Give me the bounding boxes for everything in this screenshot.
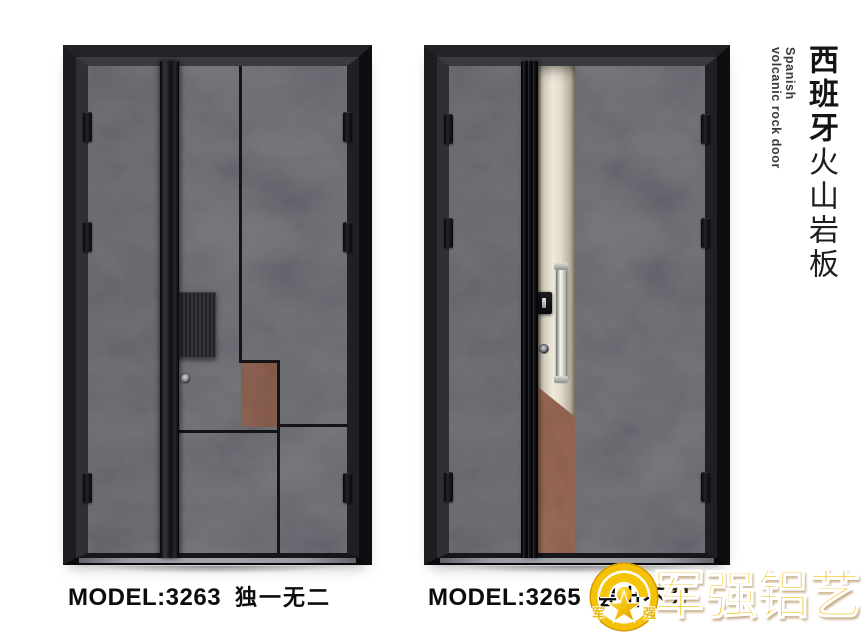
model-tagline: 独一无二 [235,585,331,610]
brand-wordmark: 军强铝艺 [653,569,861,624]
rust-accent-panel [241,363,277,427]
panel-seam-horizontal [239,360,280,363]
emblem-char-right: 强 [643,603,656,622]
hinge [701,114,710,144]
rust-inlay-strip [538,387,575,553]
panel-seam-vertical [239,66,242,362]
hinge [701,218,710,248]
model-caption-3263: MODEL:3263独一无二 [68,580,331,612]
model-number: MODEL:3265 [428,584,581,611]
panel-seam-horizontal [179,430,280,433]
hinge [444,218,453,248]
narrow-leaf [88,66,160,553]
side-title-en-line1: Spanish [783,47,797,169]
main-leaf [575,66,705,553]
hinge [83,473,92,503]
handle-mount [554,263,568,270]
door-sill [440,558,714,563]
handle-mount [554,376,568,383]
side-title-en-line2: volcanic rock door [769,47,783,169]
grooved-stile [521,61,538,558]
hinge [83,112,92,142]
pull-bar-handle [160,61,179,558]
rust-inlay-texture [538,387,575,553]
door-leaves [449,66,705,553]
hinge [444,472,453,502]
lock-display [542,298,546,308]
lock-plate [179,292,216,358]
door-photo-3265 [424,45,730,565]
panel-seam-horizontal [280,424,347,427]
smart-lock [538,292,552,314]
brand-emblem: 军 强 [589,562,659,632]
main-leaf [179,66,347,553]
emblem-char-left: 军 [592,603,605,622]
side-title-cn-bold: 西班牙 [804,44,837,146]
narrow-leaf [449,66,521,553]
hinge [701,472,710,502]
keyhole [539,344,549,354]
keyhole [180,373,191,384]
door-handle [556,266,566,380]
hinge [444,114,453,144]
hinge [343,222,352,252]
mirror-strip [538,66,575,553]
side-title-en: Spanish volcanic rock door [769,47,796,169]
poster-canvas: MODEL:3263独一无二 MODEL:3265层出不穷 西班牙火山岩板 Sp… [0,0,861,632]
door-photo-3263 [63,45,372,565]
side-title-cn: 西班牙火山岩板 [800,44,840,282]
side-title-cn-regular: 火山岩板 [804,146,837,282]
hinge [83,222,92,252]
floor-shadow [66,566,366,576]
hinge [343,473,352,503]
door-sill [79,558,356,563]
panel-seam-vertical [277,360,280,553]
door-leaves [88,66,347,553]
hinge [343,112,352,142]
model-number: MODEL:3263 [68,584,221,611]
